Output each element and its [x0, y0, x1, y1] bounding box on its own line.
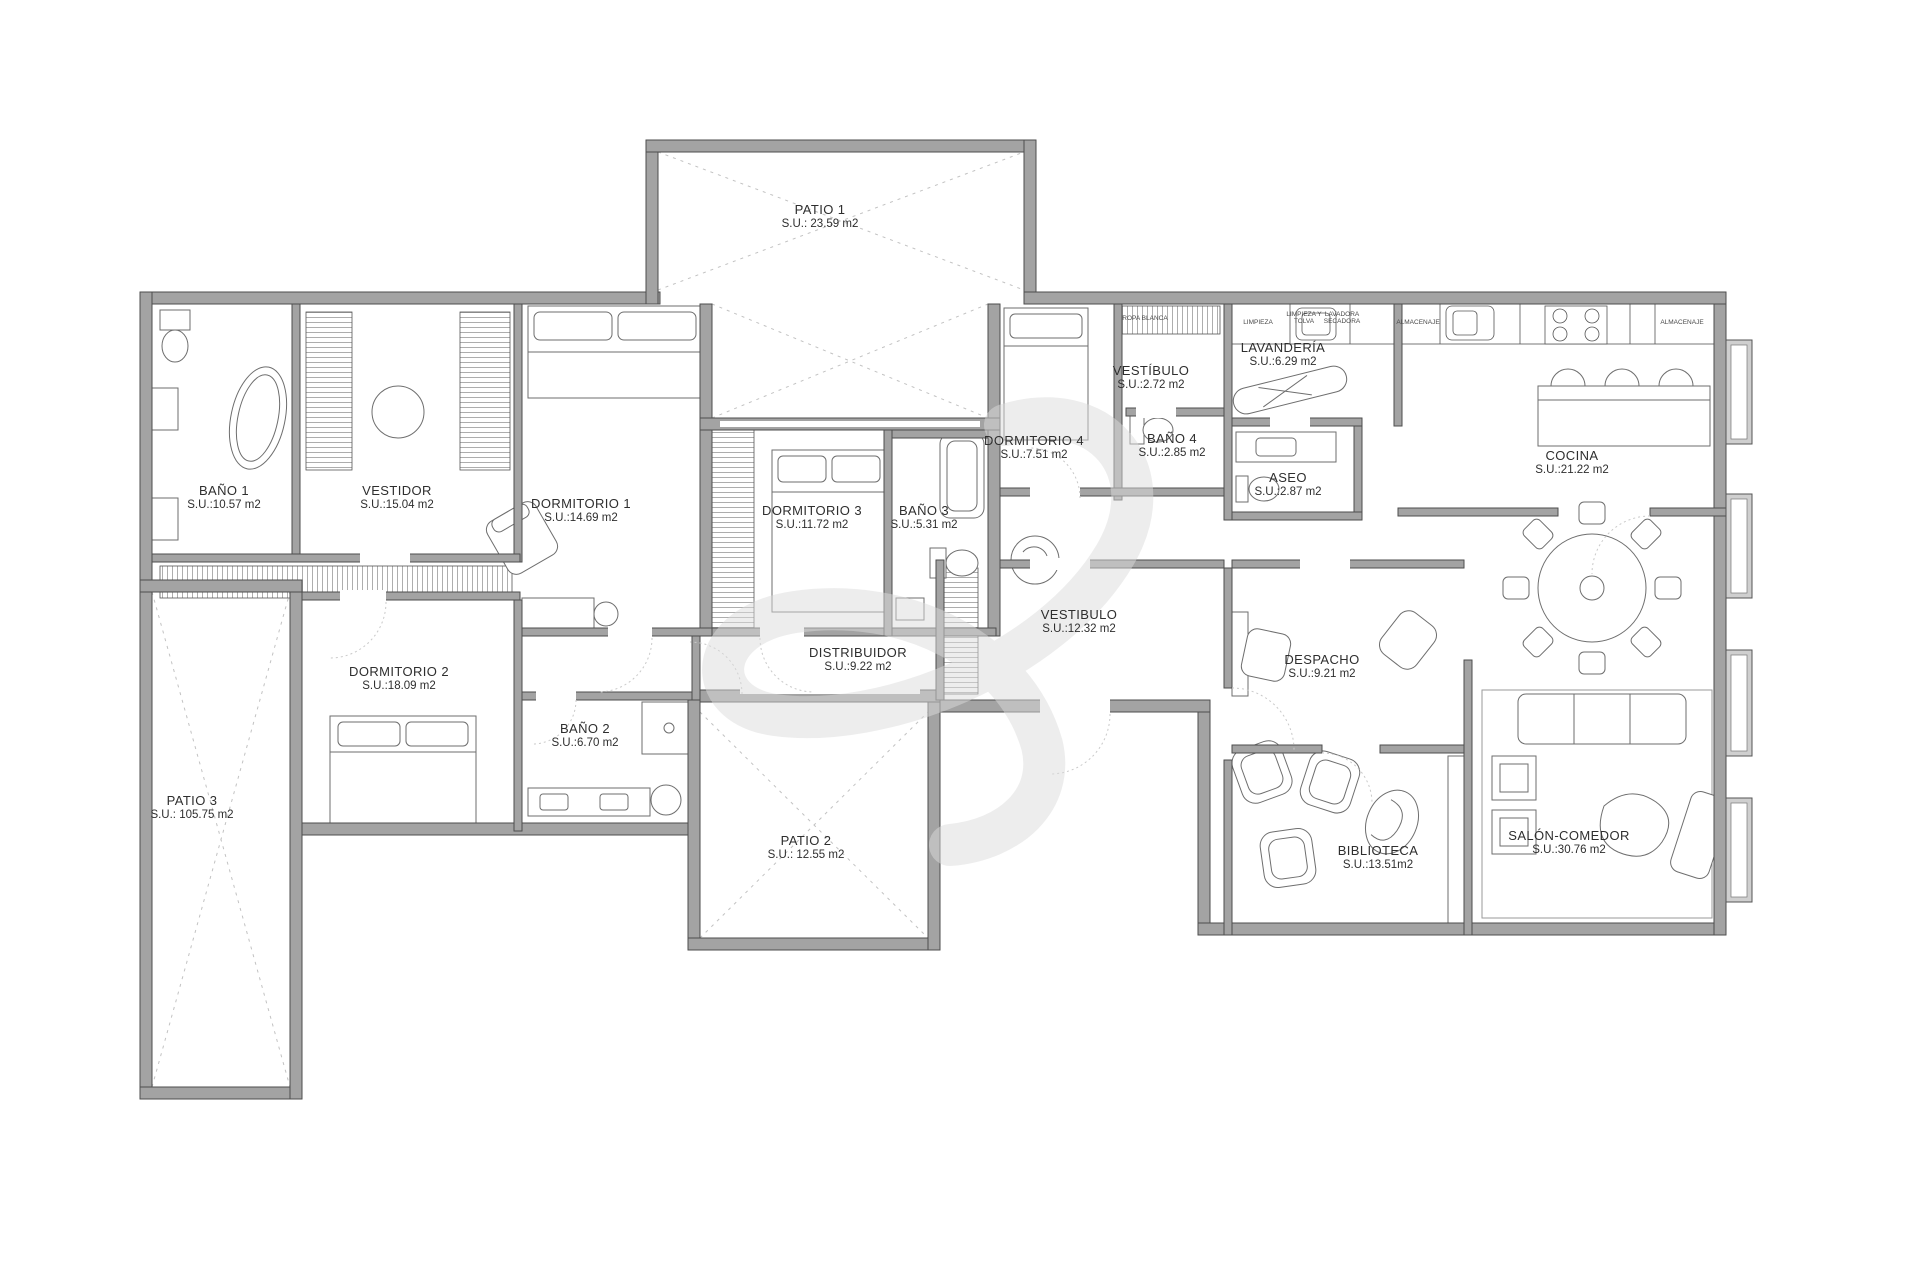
bathtub-bano-3: [940, 434, 984, 518]
side-table: [1492, 756, 1536, 800]
window: [1726, 340, 1752, 444]
sink-bano-3: [896, 598, 924, 620]
side-table: [1492, 810, 1536, 854]
window: [1726, 494, 1752, 598]
bookshelf: [1448, 756, 1464, 924]
cabinet-label-lavadora: LAVADORA SECADORA: [1319, 311, 1365, 326]
sink-bano-1: [152, 388, 178, 430]
desk-dormitorio-1: [522, 598, 618, 630]
closet: [460, 312, 510, 470]
closet: [712, 430, 754, 628]
aseo-counter: [1236, 432, 1336, 462]
egg-table: [1356, 782, 1429, 863]
kitchen-island: [1538, 369, 1710, 446]
floor-plan-drawing: [0, 0, 1920, 1280]
kitchen-sink-basin: [1453, 311, 1477, 335]
coffee-table: [1600, 794, 1669, 856]
window: [1726, 650, 1752, 756]
toilet-aseo: [1236, 476, 1279, 502]
bano-2-fixtures: [528, 702, 696, 816]
bed-dormitorio-3: [772, 450, 886, 612]
bed-dormitorio-4: [1004, 308, 1088, 440]
toilet-bano-1: [160, 310, 190, 362]
cabinet-label-almacenaje-2: ALMACENAJE: [1660, 319, 1703, 326]
windows-layer: [1726, 340, 1752, 902]
cabinet-label-limpieza: LIMPIEZA: [1243, 319, 1273, 326]
floor-plan-page: PATIO 1S.U.: 23.59 m2 BAÑO 1S.U.:10.57 m…: [0, 0, 1920, 1280]
ironing-board: [1231, 363, 1350, 416]
bed-dormitorio-1: [528, 306, 708, 398]
closet: [306, 312, 352, 470]
dining-table: [1503, 502, 1681, 674]
cabinet-label-ropa-blanca: ROPA BLANCA: [1122, 315, 1167, 322]
bed-dormitorio-2: [330, 716, 476, 826]
vestidor-pouf: [372, 386, 424, 438]
sofa: [1518, 694, 1686, 744]
toilet-bano-4: [1130, 416, 1173, 444]
office-furniture: [1232, 606, 1441, 696]
sink-bano-1b: [152, 498, 178, 540]
window: [1726, 798, 1752, 902]
library-furniture: [1228, 737, 1464, 924]
living-room-furniture: [1482, 690, 1732, 918]
bathtub-bano-1: [221, 362, 295, 475]
walls-layer: [140, 140, 1726, 1099]
cabinet-label-almacenaje-1: ALMACENAJE: [1396, 319, 1439, 326]
